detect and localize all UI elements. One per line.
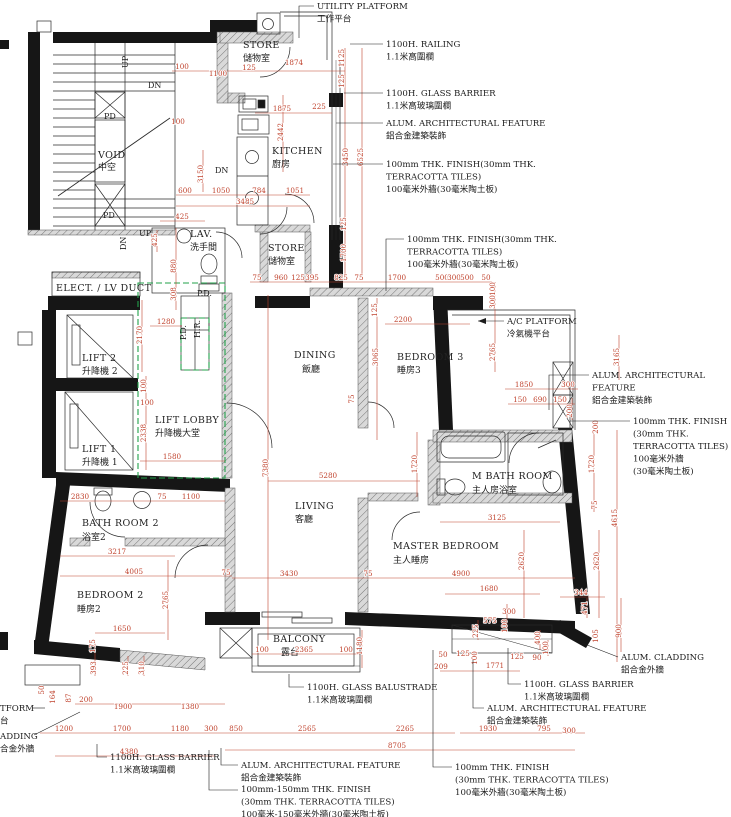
dimension-label: 575 — [483, 616, 497, 625]
annotation-line: TFORM — [0, 704, 34, 714]
dimension-label: 50 — [37, 685, 46, 695]
dimension-label: 3150 — [196, 164, 205, 183]
dimension-label: 4900 — [452, 569, 471, 578]
dimension-label: 150 — [513, 395, 527, 404]
dimension-label: 310 — [137, 661, 146, 675]
dimension-label: 100 — [140, 398, 154, 407]
dimension-label: 1771 — [486, 661, 504, 670]
annotation-line: 100mm THK. FINISH — [633, 417, 728, 427]
annotation-line: 鋁合金建築裝飾 — [386, 130, 447, 142]
dimension-label: 100 — [171, 117, 185, 126]
leader-arrowhead — [478, 318, 486, 324]
room-label-zh: 主人睡房 — [393, 554, 429, 566]
annotation-line: 鋁合金建築裝飾 — [241, 772, 302, 784]
dimension-label: 175 — [88, 639, 97, 653]
annotation-line: ALUM. ARCHITECTURAL FEATURE — [240, 761, 400, 771]
annotation-line: 冷氣機平台 — [507, 328, 550, 340]
dimension-label: 125 — [456, 649, 470, 658]
dimension-label: 1200 — [55, 724, 74, 733]
dimension-label: 1874 — [285, 58, 304, 67]
room-label-zh: 睡房2 — [77, 603, 101, 615]
dimension-label: 471 — [580, 601, 589, 615]
dimension-label: 75 — [221, 568, 231, 577]
annotation-line: 台 — [0, 715, 9, 727]
dimension-label: 2338 — [139, 423, 148, 442]
dimension-label: 2265 — [396, 724, 415, 733]
dimension-label: 1180 — [171, 724, 190, 733]
annotation-line: 100mm THK. FINISH — [455, 763, 550, 773]
annotation-line: 100mm THK. FINISH(30mm THK. — [407, 234, 557, 245]
annotation-line: 合金外牆 — [0, 743, 35, 755]
room-label-zh: 睡房3 — [397, 364, 421, 376]
dimension-label: 1700 — [113, 724, 132, 733]
plan-code-label: PD — [103, 211, 115, 220]
dimension-label: 344 — [574, 588, 588, 597]
dimension-label: 75 — [354, 273, 364, 282]
annotation-line: 鋁合金建築裝飾 — [592, 394, 653, 406]
dimension-label: 308 — [169, 287, 178, 301]
plan-code-label: DN — [119, 237, 128, 250]
annotation-line: 1100H. GLASS BARRIER — [386, 89, 496, 99]
annotation-line: FEATURE — [592, 384, 636, 394]
annotation-line: ADDING — [0, 732, 38, 742]
dimension-label: 125 — [337, 74, 346, 88]
dimension-label: 200 — [79, 695, 93, 704]
annotation-line: UTILITY PLATFORM — [317, 2, 408, 12]
annotation-line: 100毫米外牆 — [633, 453, 684, 465]
plan-code-label: H.R. — [193, 320, 202, 338]
annotation-leader — [299, 6, 314, 38]
annotation-line: 1.1米高玻璃圍欄 — [524, 691, 589, 703]
dimension-label: 1050 — [212, 186, 231, 195]
room-label: LIFT 2 — [82, 353, 116, 364]
dimension-label: 200 — [565, 404, 574, 418]
dimension-label: 225 — [312, 102, 326, 111]
dimension-label: 87 — [64, 693, 73, 703]
dimension-label: 3430 — [280, 569, 299, 578]
dimension-label: 75 — [590, 500, 599, 510]
dimension-label: 100 — [339, 645, 353, 654]
dimension-label: 1875 — [273, 104, 292, 113]
annotation-line: 鋁合金建築裝飾 — [487, 715, 548, 727]
dimension-label: 300 — [488, 295, 497, 309]
dimension-label: 900 — [614, 624, 623, 638]
annotation-leader — [386, 239, 404, 291]
room-label-zh: 儲物室 — [268, 255, 295, 267]
dimension-label: 75 — [363, 569, 373, 578]
dimension-label: 100 — [139, 379, 148, 393]
dimension-label: 2565 — [298, 724, 317, 733]
room-label: LIFT 1 — [82, 444, 116, 455]
plan-code-label: P.D. — [179, 325, 188, 340]
room-label: LIVING — [295, 501, 334, 512]
dimension-label: 1125 — [337, 48, 346, 67]
plan-code-label: DN — [215, 166, 228, 175]
dimension-label: 50 — [481, 273, 491, 282]
dimension-label: 3217 — [108, 547, 127, 556]
dimension-label: 1100 — [182, 492, 201, 501]
dimension-label: 225 — [121, 661, 130, 675]
annotation-line: 1.1米高圍欄 — [386, 51, 434, 63]
room-label-zh: 浴室2 — [82, 531, 106, 543]
dimension-label: 125 — [242, 63, 256, 72]
room-label: LIFT LOBBY — [155, 415, 220, 426]
dimension-label: 75 — [252, 273, 262, 282]
plan-code-label: P.D. — [197, 289, 212, 298]
room-label-zh: 洗手間 — [190, 241, 217, 253]
annotation-line: 工作平台 — [317, 13, 351, 25]
dimension-label: 1700 — [388, 273, 407, 282]
dimension-label: 209 — [434, 662, 448, 671]
dimension-label: 4615 — [610, 508, 619, 527]
dimension-label: 1051 — [286, 186, 304, 195]
annotation-line: 1.1米高玻璃圍欄 — [110, 764, 175, 776]
dimension-label: 100 — [175, 62, 189, 71]
dimension-label: 125 — [339, 217, 348, 231]
dimension-label: 600 — [178, 186, 192, 195]
dimension-label: 1280 — [157, 317, 176, 326]
room-label: KITCHEN — [272, 146, 323, 157]
dimension-label: 1180 — [355, 636, 364, 655]
dimension-label: 393 — [89, 661, 98, 675]
room-label: BEDROOM 2 — [77, 590, 144, 601]
dimension-label: 225 — [471, 624, 480, 638]
plan-code-label: DN — [148, 81, 161, 90]
annotation-line: TERRACOTTA TILES) — [633, 441, 728, 452]
room-label-zh: 升降機 2 — [82, 365, 118, 377]
room-label: BEDROOM 3 — [397, 352, 464, 363]
annotation-line: ALUM. ARCHITECTURAL — [591, 371, 705, 381]
dimension-label: 4005 — [125, 567, 144, 576]
room-label-zh: 飯廳 — [302, 363, 320, 375]
dimension-label: 2830 — [71, 492, 90, 501]
dimension-label: 200 — [591, 420, 600, 434]
dimension-label: 395 — [305, 273, 319, 282]
dimension-label: 3485 — [236, 197, 255, 206]
room-label: STORE — [268, 243, 305, 254]
dimension-label: 90 — [532, 653, 542, 662]
lift-lobby-boundary — [138, 283, 225, 478]
dimension-label: 5280 — [319, 471, 338, 480]
dimension-label: 3065 — [371, 347, 380, 366]
dimension-label: 3450 — [341, 147, 350, 166]
floor-plan-svg: STORE儲物室KITCHEN廚房STORE儲物室DINING飯廳BEDROOM… — [0, 0, 731, 817]
room-label-zh: 客廳 — [295, 513, 313, 525]
room-label: ELECT. / LV DUCT — [56, 283, 152, 294]
annotation-line: 100毫米外牆(30毫米陶土板) — [386, 183, 497, 195]
room-label: VOID — [97, 150, 125, 161]
room-label: BATH ROOM 2 — [82, 518, 159, 529]
dimension-label: 125 — [370, 303, 379, 317]
dimension-label: 1380 — [181, 702, 200, 711]
room-label: BALCONY — [273, 634, 326, 645]
annotation-line: ALUM. CLADDING — [620, 653, 704, 663]
dimension-label: 7380 — [261, 458, 270, 477]
dimension-label: 2200 — [394, 315, 413, 324]
dimension-label: 1100 — [209, 69, 228, 78]
dimension-label: 784 — [252, 186, 266, 195]
dimension-label: 2765 — [161, 590, 170, 609]
annotation-line: (30mm THK. TERRACOTTA TILES) — [455, 775, 609, 786]
annotation-leader — [221, 748, 238, 765]
dimension-label: 2620 — [517, 551, 526, 570]
annotation-leader — [97, 744, 107, 757]
annotation-line: 1.1米高玻璃圍欄 — [386, 100, 451, 112]
annotation-line: 1100H. GLASS BALUSTRADE — [307, 683, 437, 693]
dimension-label: 500 — [460, 273, 474, 282]
dimension-label: 425 — [175, 212, 189, 221]
room-label-zh: 升降機大堂 — [155, 427, 200, 439]
annotation-leader — [289, 674, 304, 687]
dimension-label: 300 — [562, 726, 576, 735]
annotation-line: TERRACOTTA TILES) — [407, 247, 502, 258]
dimension-label: 1900 — [114, 702, 133, 711]
room-label: LAV. — [190, 229, 213, 240]
dimension-label: 1720 — [587, 454, 596, 473]
annotation-line: 1100H. GLASS BARRIER — [110, 753, 220, 763]
annotation-line: (30mm THK. — [633, 429, 689, 440]
dimension-label: 50 — [438, 650, 448, 659]
dimension-label: 75 — [347, 394, 356, 404]
plan-code-label: PD — [104, 112, 116, 121]
dimension-label: 1580 — [163, 452, 182, 461]
dimension-label: 75 — [157, 492, 167, 501]
walls-black — [0, 20, 592, 662]
dimension-label: 300 — [204, 724, 218, 733]
dimension-label: 100 — [470, 651, 479, 665]
dimension-label: 850 — [229, 724, 243, 733]
dimension-label: 425 — [150, 233, 159, 247]
annotation-leader — [473, 660, 484, 708]
dimension-label: 2620 — [592, 551, 601, 570]
annotation-line: 鋁合金外牆 — [621, 664, 664, 676]
dimension-label: 1850 — [515, 380, 534, 389]
room-label-zh: 主人房浴室 — [472, 484, 517, 496]
dimension-label: 150 — [553, 395, 567, 404]
annotation-line: A/C PLATFORM — [506, 317, 577, 327]
dimension-label: 2365 — [295, 645, 314, 654]
annotation-line: ALUM. ARCHITECTURAL FEATURE — [385, 119, 545, 129]
annotation-line: 100mm THK. FINISH(30mm THK. — [386, 159, 536, 170]
dimension-label: 880 — [169, 259, 178, 273]
dimension-label: 3165 — [612, 347, 621, 366]
annotation-line: 100毫米-150毫米外牆(30毫米陶土板) — [241, 808, 389, 817]
annotation-line: (30mm THK. TERRACOTTA TILES) — [241, 797, 395, 808]
room-label-zh: 廚房 — [272, 158, 290, 170]
annotation-line: TERRACOTTA TILES) — [386, 172, 481, 183]
room-label-zh: 升降機 1 — [82, 456, 118, 468]
dimension-label: 2765 — [488, 342, 497, 361]
floor-plan-page: STORE儲物室KITCHEN廚房STORE儲物室DINING飯廳BEDROOM… — [0, 0, 731, 817]
dimension-label: 690 — [533, 395, 547, 404]
dimension-label: 1650 — [113, 624, 132, 633]
annotation-line: ALUM. ARCHITECTURAL FEATURE — [486, 704, 646, 714]
annotation-line: (30毫米陶土板) — [633, 465, 694, 477]
dimension-label: 8705 — [388, 741, 407, 750]
dimension-label: 100 — [255, 645, 269, 654]
room-label: STORE — [243, 40, 280, 51]
dimension-label: 3125 — [488, 513, 507, 522]
room-label-zh: 中空 — [98, 161, 116, 173]
dimension-label: 1700 — [339, 243, 348, 262]
dimension-label: 1680 — [480, 584, 499, 593]
annotation-line: 100毫米外牆(30毫米陶土板) — [407, 258, 518, 270]
dimension-label: 300 — [561, 380, 575, 389]
dimension-label: 6525 — [356, 147, 365, 166]
dimension-label: 1720 — [410, 454, 419, 473]
dimension-label: 960 — [274, 273, 288, 282]
dimension-label: 164 — [48, 690, 57, 704]
dimension-label: 100 — [541, 641, 550, 655]
dimension-label: 2170 — [135, 325, 144, 344]
dimension-label: 2442 — [276, 123, 285, 141]
annotation-line: 1100H. GLASS BARRIER — [524, 680, 634, 690]
room-label: MASTER BEDROOM — [393, 541, 499, 552]
room-label: DINING — [294, 350, 336, 361]
dimension-label: 125 — [510, 652, 524, 661]
plan-code-label: UP — [121, 55, 130, 68]
dimension-label: 100 — [488, 282, 497, 296]
room-label: M BATH ROOM — [472, 471, 553, 482]
dimension-label: 100 — [500, 619, 509, 633]
annotation-line: 1100H. RAILING — [386, 40, 461, 50]
annotation-leader — [582, 643, 618, 657]
dimension-label: 825 — [334, 273, 348, 282]
annotation-line: 100毫米外牆(30毫米陶土板) — [455, 786, 566, 798]
dimension-label: 300 — [502, 607, 516, 616]
annotation-line: 1.1米高玻璃圍欄 — [307, 694, 372, 706]
dimension-label: 125 — [291, 273, 305, 282]
dimension-label: 105 — [591, 629, 600, 643]
annotation-line: 100mm-150mm THK. FINISH — [241, 785, 371, 795]
